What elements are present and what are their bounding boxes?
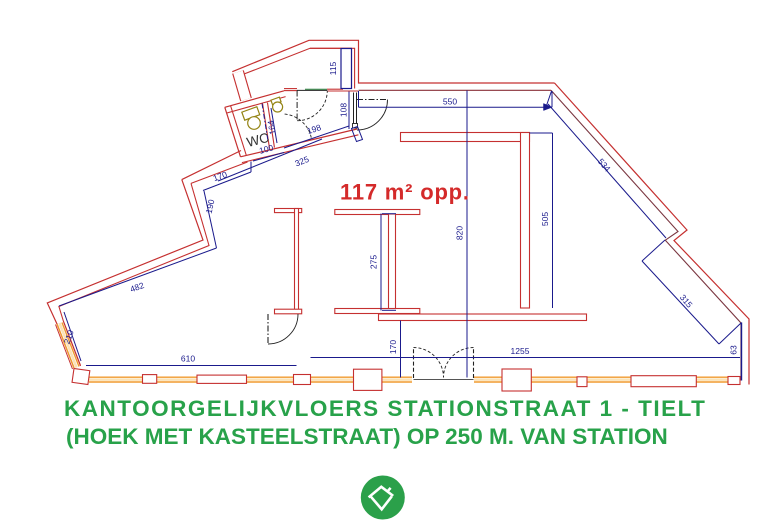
svg-text:550: 550 — [443, 97, 457, 107]
svg-text:63: 63 — [729, 345, 739, 355]
svg-text:610: 610 — [181, 354, 195, 364]
svg-text:108: 108 — [339, 103, 349, 117]
svg-text:170: 170 — [388, 340, 398, 354]
svg-text:482: 482 — [129, 280, 146, 294]
svg-text:325: 325 — [293, 154, 310, 169]
svg-text:820: 820 — [455, 226, 465, 240]
svg-text:275: 275 — [369, 255, 379, 269]
svg-text:198: 198 — [306, 122, 323, 136]
svg-text:1255: 1255 — [511, 346, 530, 356]
svg-text:117 m² opp.: 117 m² opp. — [340, 180, 470, 205]
svg-text:505: 505 — [540, 212, 550, 226]
svg-text:115: 115 — [328, 61, 338, 75]
svg-text:534: 534 — [596, 156, 613, 173]
svg-text:315: 315 — [678, 292, 695, 309]
svg-text:KANTOORGELIJKVLOERS STATIONSTR: KANTOORGELIJKVLOERS STATIONSTRAAT 1 - TI… — [64, 396, 706, 421]
svg-text:190: 190 — [204, 198, 217, 214]
svg-text:(HOEK MET KASTEELSTRAAT) OP 25: (HOEK MET KASTEELSTRAAT) OP 250 M. VAN S… — [66, 424, 668, 449]
